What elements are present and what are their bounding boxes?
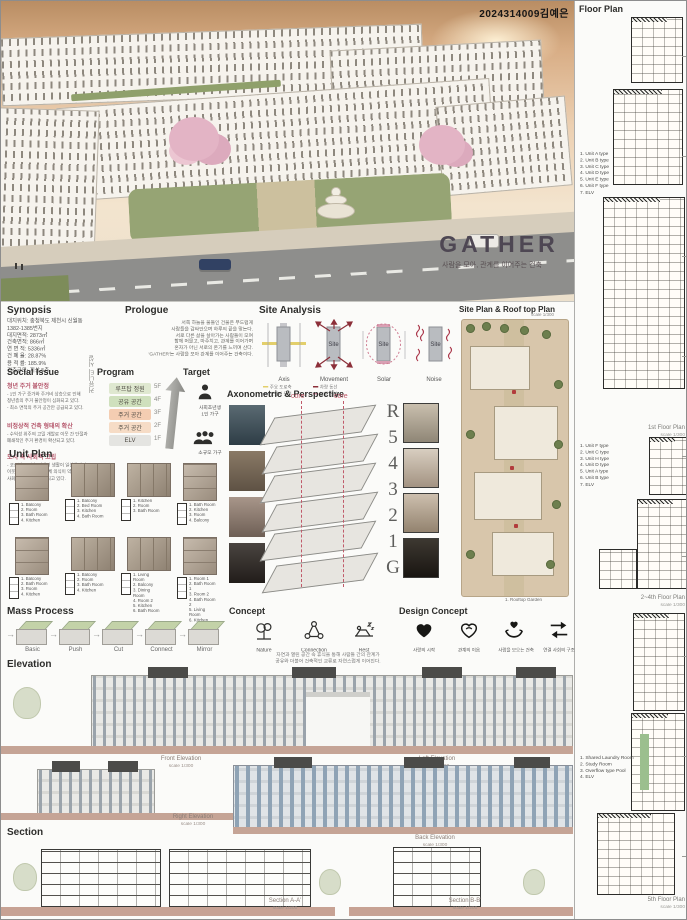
elevation-caption: Right Elevation scale 1/300 [151,814,235,829]
section-tree [13,863,37,891]
target-heading: Target [183,367,227,377]
cherry-blossom-tree [419,125,465,165]
unit-plan-drawing [177,503,187,525]
tree [466,550,475,559]
caption-title: 2~4th Floor Plan [599,595,685,603]
section-tree [523,869,545,895]
site-plan-scale: scale 1/300 [531,313,554,319]
axono-heading: Axonometric & Perspective [227,389,344,399]
site-analysis-diagrams: Axis Site Movement Site [259,319,459,383]
unit-plan-legend: 1. Living Room 2. Balcony 3. Dining Room… [133,573,162,614]
heart-swirl-icon [458,619,480,641]
synopsis-heading: Synopsis [7,305,119,316]
floor-plan-drawing [597,813,675,895]
exchange-arrows-icon [548,619,570,641]
elevation-opening [306,692,370,752]
design-concept-item: 사람을 모으는 건축 [493,619,535,655]
perspective-thumb [403,403,439,443]
unit-plan-cell: 1. Balcony 2. Bath Room 3. Room 4. Kitch… [9,537,61,605]
unit-plan-detail: 1. Balcony 2. Bath Room 3. Room 4. Kitch… [9,577,61,606]
plan-hatch [614,90,662,94]
concept-item-connection: Connection [289,619,339,654]
site-analysis-heading: Site Analysis [259,305,321,316]
floor-plan-caption: 5th Floor Plan scale 1/300 [597,897,685,913]
mass-process-heading: Mass Process [7,606,74,617]
target-label: 소규모 가구 [188,451,231,457]
perspective-thumb [403,493,439,533]
legend-swatch [263,386,268,388]
unit-plan-cell: 1. Living Room 2. Balcony 3. Dining Room… [121,537,173,605]
mass-step-label: Mirror [183,647,226,653]
section-drawing [41,849,161,907]
car [199,259,231,270]
caption-scale: scale 1/300 [615,905,685,911]
hero-divider [1,301,574,302]
ground-line [233,827,573,834]
core-line [301,401,302,587]
roof-volume [148,667,188,678]
design-concept-label: 연결 사회의 구조 [543,646,575,653]
massing-model [144,621,180,645]
pedestrian [21,264,23,270]
unit-plan-cell: 1. Bath Room 2. Kitchen 3. Room 4. Balco… [177,463,229,531]
mass-step: → Connect [140,621,183,653]
massing-body [188,629,219,645]
social-issue-heading: Social Issue [7,367,93,377]
massing-body [102,629,133,645]
unit-plan-render [127,537,171,571]
perspective-thumbs-right [403,403,439,583]
unit-plan-legend: 1. Balcony 2. Bath Room 3. Room 4. Kitch… [21,577,50,598]
floor-label: 4F [154,397,161,410]
unit-plan-cell: 1. Balcony 2. Bed Room 3. Kitchen 4. Bat… [65,463,117,531]
svg-text:Site: Site [328,342,339,348]
mass-step-label: Basic [11,647,54,653]
core-label: core [334,393,348,400]
unit-plan-detail: 1. Kitchen 2. Room 3. Bath Room [121,499,173,521]
concept-item-nature: Nature [239,619,289,654]
grass [1,275,70,301]
program-row: 주거 공간 [109,422,151,433]
site-furniture [514,524,518,528]
mass-step-label: Cut [97,647,140,653]
site-analysis-diagram-solar: Site Solar [359,319,409,383]
building-footprint [470,346,530,390]
unit-plan-cell: 1. Room 1 2. Bath Room 1 3. Room 2 4. Ba… [177,537,229,605]
unit-plan-render [71,463,115,497]
plan-hatch [632,18,667,22]
level-letter: 3 [385,479,401,505]
design-concept-label: 사람을 모으는 건축 [498,646,530,653]
massing-model [187,621,223,645]
massing-model [15,621,51,645]
caption-title: Right Elevation [151,814,235,822]
tree [546,560,555,569]
scale-tick [682,656,687,657]
unit-plan-legend: 1. Bath Room 2. Kitchen 3. Room 4. Balco… [189,503,218,524]
unit-plan-cell: 1. Balcony 2. Room 3. Bath Room 4. Kitch… [9,463,61,531]
level-letters: R54321G [385,401,401,583]
roof-volume [292,667,336,678]
floor-plan-legend: 1. Unit A type 2. Unit B type 3. Unit C … [580,151,687,196]
tree [554,440,563,449]
unit-plan-detail: 1. Balcony 2. Room 3. Bath Room 4. Kitch… [65,573,117,602]
design-concept-label: 사랑의 시작 [408,646,440,653]
site-analysis-diagram-noise: Site Noise [409,319,459,383]
building-footprint [492,532,554,576]
front-elevation-drawing [91,675,573,748]
unit-plan-render [71,537,115,571]
caption-scale: scale 1/300 [159,822,226,828]
unit-plan-drawing [9,503,19,525]
caption-title: 1st Floor Plan [599,425,685,433]
issue-title: 청년 주거 불안정 [7,381,93,390]
floor-label: 3F [154,410,161,423]
unit-plan-render [15,537,49,575]
core-line [343,401,344,587]
tree [482,322,491,331]
unit-plan-grid: 1. Balcony 2. Room 3. Bath Room 4. Kitch… [9,463,229,605]
unit-plan-drawing [65,573,75,595]
perspective-thumb [403,448,439,488]
caption-scale: scale 1/300 [149,764,213,770]
section-tree [319,869,341,895]
site-analysis-diagram-axis: Axis [259,319,309,383]
tree [542,330,551,339]
design-concept-item: 사랑의 시작 [403,619,445,655]
caption-title: Back Elevation [393,835,477,843]
noise-diagram-graphic: Site [410,319,458,371]
section-caption: Section A-A' scale 1/200 [249,898,321,913]
program-box: ELV [109,435,151,446]
prologue-section: Prologue 서쪽 하늘을 물들인 건물은 부드럽게 사람들을 감싸안으며 … [125,305,255,368]
scale-tick [682,456,687,457]
floor-plan-drawing [649,437,687,495]
plan-hatch [632,714,668,718]
scale-tick [682,856,687,857]
unit-plan-drawing [65,499,75,521]
caption-title: 5th Floor Plan [597,897,685,905]
student-id: 2024314009김예은 [397,5,569,20]
elevation-tree [13,687,41,719]
unit-plan-render [15,463,49,501]
tree [520,326,529,335]
program-box: 공유 공간 [109,396,151,407]
design-concept-items: 사랑의 시작 관계의 이음 사람을 모으는 건축 연결 사회의 구조 [403,619,580,655]
unit-plan-legend: 1. Room 1 2. Bath Room 1 3. Room 2 4. Ba… [189,577,218,624]
ground-line [1,746,573,754]
roof-volume [514,757,550,768]
massing-model [58,621,94,645]
design-concept-heading: Design Concept [399,606,468,616]
program-box: 루프탑 정원 [109,383,151,394]
mass-step-label: Push [54,647,97,653]
floor-plan-legend: 1. Shared Laundry Room 2. Study Room 3. … [580,755,644,781]
unit-plan-drawing [121,499,131,521]
unit-plan-detail: 1. Balcony 2. Room 3. Bath Room 4. Kitch… [9,503,61,532]
roof-volume [274,757,312,768]
concept-heading: Concept [229,606,265,616]
axis-diagram-graphic [260,319,308,371]
tree [466,430,475,439]
tree [554,380,563,389]
fountain [317,187,353,219]
issue-title: 비정상적 건축 형태의 확산 [7,421,93,430]
tree [552,500,561,509]
site-furniture [512,390,516,394]
rest-icon [352,619,376,643]
site-plan-heading: Site Plan & Roof top Plan [459,305,573,314]
program-row: 공유 공간 [109,396,151,407]
issue-body: - 1인 가구 증가와 주거비 상승으로 인해 청년층의 주거 불안정이 심화되… [7,390,96,410]
site-analysis-diagram-movement: Site Movement [309,319,359,383]
massing-body [16,629,47,645]
program-row: 루프탑 정원 [109,383,151,394]
core-label: core [291,393,305,400]
level-letter: G [385,557,401,583]
solar-diagram-graphic: Site [360,319,408,371]
column-divider [574,1,575,920]
legend-swatch [313,386,318,388]
back-elevation-drawing [233,765,573,829]
site-plan-drawing [461,319,569,597]
floor-plan-drawing [603,197,685,389]
level-letter: 5 [385,427,401,453]
unit-plan-render [127,463,171,497]
connection-icon [302,619,326,643]
floor-plan-drawing [637,499,687,589]
level-letter: 4 [385,453,401,479]
caption-scale: scale 1/300 [616,603,685,609]
svg-text:Site: Site [430,342,441,348]
mass-step: → Basic [11,621,54,653]
diagram-label: Noise [409,377,459,383]
mass-step-label: Connect [140,647,183,653]
roof-volume [516,667,556,678]
program-row: ELV [109,435,151,446]
mass-step: → Cut [97,621,140,653]
plan-hatch [650,438,675,442]
unit-plan-render [183,537,217,575]
diagram-label: Solar [359,377,409,383]
floor-plan-heading: Floor Plan [579,4,623,14]
target-label: 사회초년생 1인 가구 [188,406,231,418]
mass-step: → Mirror [183,621,226,653]
design-concept-item: 연결 사회의 구조 [538,619,580,655]
movement-diagram-graphic: Site [310,319,358,371]
unit-plan-drawing [9,577,19,599]
project-subtitle: 사람을 모아, 관계를 이어주는 건축 [415,260,569,270]
unit-plan-legend: 1. Balcony 2. Room 3. Bath Room 4. Kitch… [77,573,106,594]
issue-body: - 수익성 위주의 고밀 개발로 이웃 간 단절과 폐쇄적인 주거 환경이 확산… [7,430,96,444]
concept-items: Nature Connection Rest [239,619,389,654]
section-heading: Section [7,827,43,838]
unit-plan-cell: 1. Kitchen 2. Room 3. Bath Room [121,463,173,531]
site-furniture [510,466,514,470]
caption-scale: scale 1/200 [256,906,314,912]
unit-plan-render [183,463,217,501]
mass-process-steps: → Basic → Push → [11,621,226,653]
design-concept-label: 관계의 이음 [453,646,485,653]
roof-volume [108,761,138,772]
unit-plan-cell: 1. Balcony 2. Room 3. Bath Room 4. Kitch… [65,537,117,605]
unit-plan-heading: Unit Plan [9,449,52,460]
design-concept-item: 관계의 이음 [448,619,490,655]
hero-render: 2024314009김예은 GATHER 사람을 모아, 관계를 이어주는 건축 [1,1,574,301]
roof-volume [52,761,80,772]
level-letter: R [385,401,401,427]
scale-tick [682,156,687,157]
pedestrian [15,263,17,269]
perspective-thumb [403,538,439,578]
program-box: 주거 공간 [109,422,151,433]
floor-plan-drawing [631,17,683,83]
person-icon [196,383,214,401]
unit-plan-drawing [177,577,187,599]
scale-tick [682,756,687,757]
project-title: GATHER [429,231,569,258]
mass-step: → Push [54,621,97,653]
program-stack: 루프탑 정원 공유 공간 주거 공간 주거 공간 ELV [109,383,151,448]
elevation-heading: Elevation [7,659,51,670]
group-icon [192,430,218,446]
scale-tick [682,256,687,257]
heart-icon [413,619,435,641]
caption-title: Section A-A' [249,898,321,906]
plan-hatch [638,500,673,504]
target-section: Target 사회초년생 1인 가구 소규모 가구 [183,367,227,458]
massing-body [145,629,176,645]
floor-label: 5F [154,384,161,397]
nature-icon [252,619,276,643]
concept-item-rest: Rest [339,619,389,654]
presentation-board: 2024314009김예은 GATHER 사람을 모아, 관계를 이어주는 건축… [0,0,687,920]
tree [466,324,475,333]
fountain-base [317,203,355,219]
scale-tick [682,356,687,357]
program-box: 주거 공간 [109,409,151,420]
unit-plan-legend: 1. Kitchen 2. Room 3. Bath Room [133,499,162,515]
concept-caption: 자연과 열린 공간 속 휴식을 통해 사람들 간의 관계가 공유와 더불어 건축… [252,653,404,665]
unit-plan-legend: 1. Balcony 2. Room 3. Bath Room 4. Kitch… [21,503,50,524]
section-caption: Section B-B' scale 1/200 [429,898,501,913]
unit-plan-drawing [121,573,131,595]
exploded-axonometric [259,407,389,599]
building-footprint [474,472,542,520]
level-letter: 1 [385,531,401,557]
building-footprint [494,406,558,460]
caption-scale: scale 1/200 [436,906,494,912]
floor-plan-drawing [599,549,637,589]
prologue-heading: Prologue [125,305,255,316]
massing-model [101,621,137,645]
hands-heart-icon [503,619,525,641]
floor-plan-drawing [633,613,685,711]
unit-plan-legend: 1. Balcony 2. Bed Room 3. Kitchen 4. Bat… [77,499,106,520]
caption-title: Front Elevation [141,756,221,764]
plan-hatch [634,614,669,618]
roof-volume [422,667,462,678]
roof-volume [404,757,444,768]
program-heading: Program [97,367,134,377]
scale-tick [682,56,687,57]
cherry-blossom-tree [169,117,219,161]
program-row: 주거 공간 [109,409,151,420]
site-plan-caption: 1. Rooftop Garden [505,598,542,604]
program-side-label: 커뮤니티 시설 [88,355,97,393]
unit-plan-detail: 1. Balcony 2. Bed Room 3. Kitchen 4. Bat… [65,499,117,528]
tree [500,324,509,333]
right-elevation-drawing [37,769,155,816]
plan-hatch [604,198,660,202]
unit-plan-detail: 1. Bath Room 2. Kitchen 3. Room 4. Balco… [177,503,229,532]
floor-plan-caption: 2~4th Floor Plan scale 1/300 [599,595,685,611]
level-letter: 2 [385,505,401,531]
svg-text:Site: Site [378,342,389,348]
scale-tick [682,556,687,557]
plan-hatch [598,814,651,818]
caption-title: Section B-B' [429,898,501,906]
prologue-text: 서쪽 하늘을 물들인 건물은 부드럽게 사람들을 감싸안으며 하루의 끝을 맞는… [125,321,253,358]
massing-body [59,629,90,645]
